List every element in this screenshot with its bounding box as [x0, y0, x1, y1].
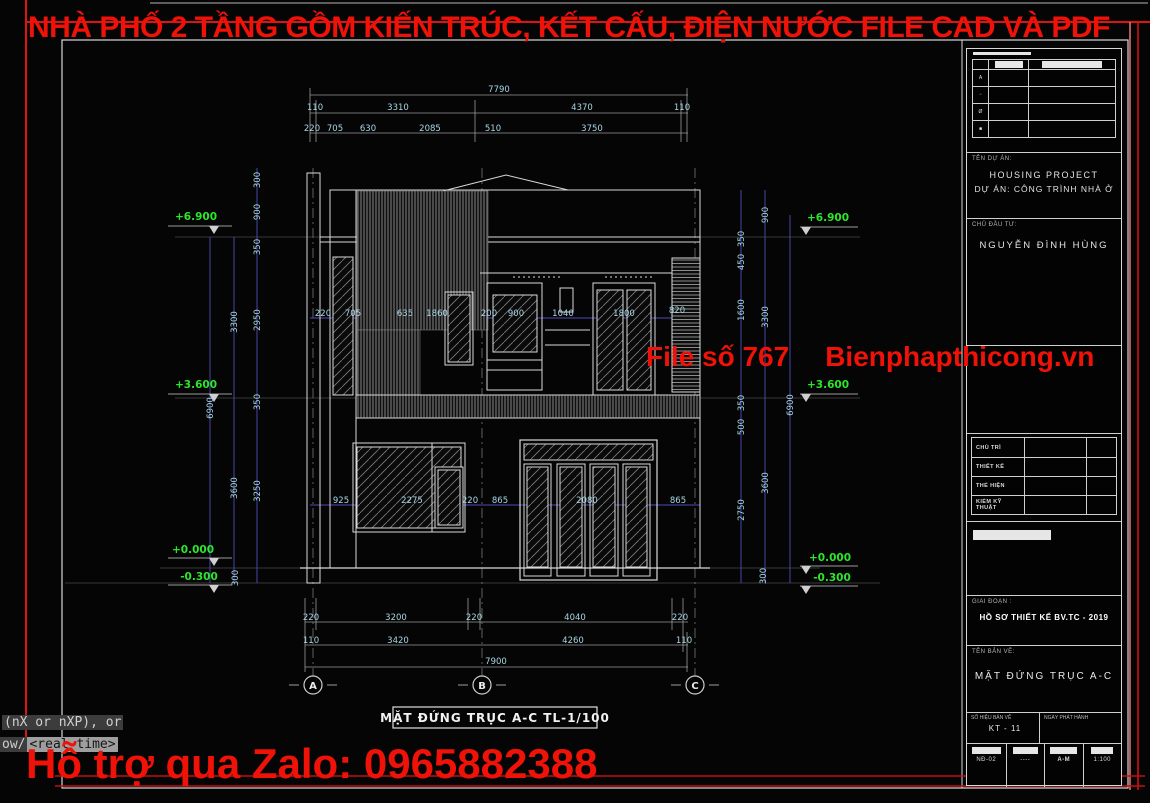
- dim-text: 705: [327, 124, 343, 134]
- dim-text: 925: [333, 496, 349, 506]
- dim-text: 3200: [385, 613, 407, 623]
- cad-screenshot: MẶT ĐỨNG TRỤC A-C TL-1/100 7790110331043…: [0, 0, 1150, 803]
- dim-text: 7790: [488, 85, 510, 95]
- sheet-number-label: SỐ HIỆU BẢN VẼ: [971, 715, 1039, 721]
- axis-text: A: [309, 681, 317, 692]
- cladding-hatch-lower: [357, 330, 420, 395]
- dim-text: 3300: [761, 306, 771, 328]
- dim-text: 220: [672, 613, 688, 623]
- lvl-text: +3.600: [807, 379, 849, 391]
- dimension-lines: [210, 88, 790, 672]
- dim-text: 3750: [581, 124, 603, 134]
- upper-window-2: [487, 283, 542, 390]
- dim-text: 1860: [426, 309, 448, 319]
- signature-section: CHỦ TRÌ THIẾT KẾ THỂ HIỆN KIỂM KỸ THUẬT: [967, 434, 1121, 522]
- drawing-label: MẶT ĐỨNG TRỤC A-C TL-1/100: [380, 710, 610, 725]
- dim-text: 4370: [571, 103, 593, 113]
- stage-section: GIAI ĐOẠN : HỒ SƠ THIẾT KẾ BV.TC - 2019: [967, 596, 1121, 646]
- lvl-text: -0.300: [813, 572, 851, 584]
- dim-text: 1040: [552, 309, 574, 319]
- lvl-text: +0.000: [809, 552, 851, 564]
- dim-text: 110: [676, 636, 692, 646]
- dim-text: 7900: [485, 657, 507, 667]
- dim-text: 300: [759, 568, 769, 584]
- revision-section: A ▫ Ø ■: [967, 49, 1121, 153]
- dim-text: 350: [737, 231, 747, 247]
- dim-text: 3250: [253, 480, 263, 502]
- dim-text: 6900: [786, 394, 796, 416]
- upper-window-3: [593, 283, 655, 395]
- dim-text: 3600: [761, 472, 771, 494]
- upper-window-1: [445, 292, 473, 365]
- lvl-text: +6.900: [175, 211, 217, 223]
- sheet-number-value: KT - 11: [971, 724, 1039, 733]
- owner-name: NGUYỄN ĐÌNH HÙNG: [967, 240, 1121, 251]
- ground-window: [353, 443, 465, 532]
- dim-text: 350: [253, 394, 263, 410]
- axis-text: C: [691, 681, 698, 692]
- dim-text: 820: [669, 306, 685, 316]
- ground-door: [520, 440, 657, 580]
- owner-label: CHỦ ĐẦU TƯ:: [967, 219, 1121, 228]
- dim-text: 4260: [562, 636, 584, 646]
- company-section: [967, 522, 1121, 596]
- slit-window: [333, 257, 353, 395]
- floor-slab-band: [356, 395, 700, 418]
- owner-section: CHỦ ĐẦU TƯ: NGUYỄN ĐÌNH HÙNG: [967, 219, 1121, 346]
- stage-value: HỒ SƠ THIẾT KẾ BV.TC - 2019: [967, 613, 1121, 622]
- project-label: TÊN DỰ ÁN:: [967, 153, 1121, 162]
- sheet-name: MẶT ĐỨNG TRỤC A-C: [967, 671, 1121, 682]
- drawing-label-box: MẶT ĐỨNG TRỤC A-C TL-1/100: [380, 707, 610, 728]
- signature-table: CHỦ TRÌ THIẾT KẾ THỂ HIỆN KIỂM KỸ THUẬT: [971, 437, 1117, 515]
- project-name-vi: DỰ ÁN: CÔNG TRÌNH NHÀ Ở: [967, 184, 1121, 194]
- axis-bubbles: [289, 676, 719, 694]
- dim-text: 500: [737, 419, 747, 435]
- dim-text: 450: [737, 254, 747, 270]
- dim-text: 1800: [613, 309, 635, 319]
- lvl-text: +0.000: [172, 544, 214, 556]
- dim-text: 2085: [419, 124, 441, 134]
- sheet-name-section: TÊN BẢN VẼ: MẶT ĐỨNG TRỤC A-C: [967, 646, 1121, 713]
- dim-text: 630: [360, 124, 376, 134]
- dim-text: 4040: [564, 613, 586, 623]
- dim-text: 705: [345, 309, 361, 319]
- dim-text: 510: [485, 124, 501, 134]
- title-block: A ▫ Ø ■ TÊN DỰ ÁN: HOUSING PROJECT DỰ ÁN…: [966, 48, 1122, 786]
- dim-text: 900: [761, 207, 771, 223]
- sheet-label: TÊN BẢN VẼ:: [967, 646, 1121, 655]
- dim-text: 865: [492, 496, 508, 506]
- top-banner: NHÀ PHỐ 2 TẦNG GỒM KIẾN TRÚC, KẾT CẤU, Đ…: [28, 11, 1110, 45]
- footer-strip: NĐ-02 ---- A-M 1:100: [967, 744, 1121, 787]
- dim-text: 350: [253, 239, 263, 255]
- dim-text: 110: [303, 636, 319, 646]
- sheet-number-section: SỐ HIỆU BẢN VẼ KT - 11 NGÀY PHÁT HÀNH: [967, 713, 1121, 744]
- dim-text: 110: [674, 103, 690, 113]
- dim-text: 220: [304, 124, 320, 134]
- dim-text: 3600: [230, 477, 240, 499]
- dim-text: 300: [253, 172, 263, 188]
- watermark-site: Bienphapthicong.vn: [825, 341, 1094, 373]
- building-elevation: [300, 173, 710, 583]
- dim-text: 220: [303, 613, 319, 623]
- watermark-file-number: File số 767: [646, 341, 789, 373]
- dim-text: 110: [307, 103, 323, 113]
- dim-text: 220: [466, 613, 482, 623]
- dim-text: 2950: [253, 309, 263, 331]
- dim-text: 3310: [387, 103, 409, 113]
- dim-text: 900: [253, 204, 263, 220]
- dim-text: 220: [315, 309, 331, 319]
- dim-text: 350: [737, 395, 747, 411]
- project-section: TÊN DỰ ÁN: HOUSING PROJECT DỰ ÁN: CÔNG T…: [967, 153, 1121, 219]
- dim-text: 2750: [737, 499, 747, 521]
- issue-date-label: NGÀY PHÁT HÀNH: [1044, 715, 1121, 721]
- watermark: File số 767 Bienphapthicong.vn: [646, 341, 1094, 373]
- dim-text: 635: [397, 309, 413, 319]
- command-line-1[interactable]: (nX or nXP), or: [2, 715, 123, 730]
- dim-text: 3420: [387, 636, 409, 646]
- lvl-text: -0.300: [180, 571, 218, 583]
- lvl-text: +6.900: [807, 212, 849, 224]
- project-name-en: HOUSING PROJECT: [967, 170, 1121, 180]
- dim-text: 900: [508, 309, 524, 319]
- dim-text: 6900: [206, 397, 216, 419]
- dim-text: 300: [231, 570, 241, 586]
- dim-text: 865: [670, 496, 686, 506]
- dim-text: 3300: [230, 311, 240, 333]
- dim-text: 200: [481, 309, 497, 319]
- stage-label: GIAI ĐOẠN :: [967, 596, 1121, 605]
- revision-table: A ▫ Ø ■: [972, 59, 1116, 138]
- dim-text: 2080: [576, 496, 598, 506]
- lvl-text: +3.600: [175, 379, 217, 391]
- dim-text: 220: [462, 496, 478, 506]
- axis-text: B: [478, 681, 486, 692]
- left-pillar: [307, 173, 320, 583]
- dim-text: 1600: [737, 299, 747, 321]
- dim-text: 2275: [401, 496, 423, 506]
- roof-gable: [443, 175, 568, 191]
- zalo-banner: Hỗ trợ qua Zalo: 0965882388: [26, 740, 597, 788]
